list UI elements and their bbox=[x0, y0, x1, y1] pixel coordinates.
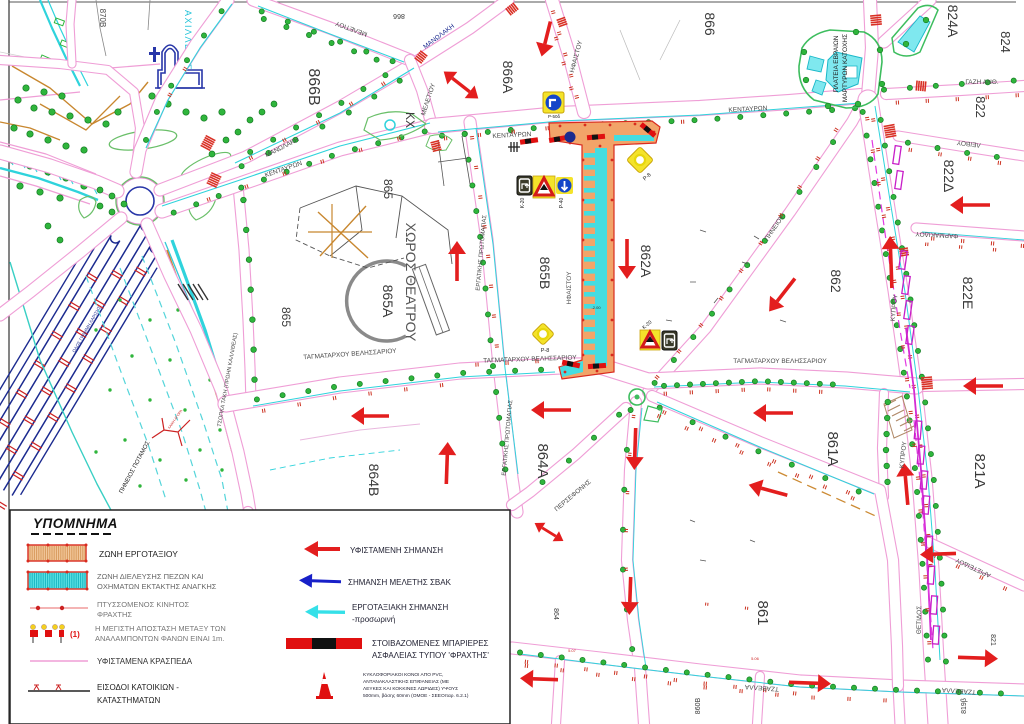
svg-text:824: 824 bbox=[998, 31, 1013, 53]
svg-text:ΕΙΣΟΔΟΙ ΚΑΤΟΙΚΙΩΝ -: ΕΙΣΟΔΟΙ ΚΑΤΟΙΚΙΩΝ - bbox=[97, 683, 179, 692]
svg-text:ΥΦΙΣΤΑΜΕΝΑ ΚΡΑΣΠΕΔΑ: ΥΦΙΣΤΑΜΕΝΑ ΚΡΑΣΠΕΔΑ bbox=[97, 657, 193, 666]
svg-text:500mm, βάσης 60mm (ΟΜΟΕ - ΣΕΕΟ: 500mm, βάσης 60mm (ΟΜΟΕ - ΣΕΕΟπαρ. 6.2.1… bbox=[363, 692, 469, 699]
svg-text:819β: 819β bbox=[961, 698, 968, 714]
svg-text:ΑΣΦΑΛΕΙΑΣ ΤΥΠΟΥ 'ΦΡΑΧΤΗΣ': ΑΣΦΑΛΕΙΑΣ ΤΥΠΟΥ 'ΦΡΑΧΤΗΣ' bbox=[372, 651, 489, 660]
svg-text:ΜΑΡΤΥΡΩΝ ΚΑΤΟΧΗΣ: ΜΑΡΤΥΡΩΝ ΚΑΤΟΧΗΣ bbox=[842, 34, 849, 102]
svg-text:822Δ: 822Δ bbox=[941, 160, 957, 193]
svg-text:ΕΡΓΟΤΑΞΙΑΚΗ ΣΗΜΑΝΣΗ: ΕΡΓΟΤΑΞΙΑΚΗ ΣΗΜΑΝΣΗ bbox=[352, 603, 448, 612]
svg-text:Ρ-50δ: Ρ-50δ bbox=[548, 114, 561, 119]
svg-text:860Β: 860Β bbox=[695, 698, 702, 715]
svg-text:870Β: 870Β bbox=[98, 9, 107, 28]
svg-text:ΑΝΤΑΝΑΚΛΑΣΤΙΚΗΣ ΕΠΙΦΑΝΕΙΑΣ (ΜΕ: ΑΝΤΑΝΑΚΛΑΣΤΙΚΗΣ ΕΠΙΦΑΝΕΙΑΣ (ΜΕ bbox=[363, 679, 449, 685]
svg-text:866: 866 bbox=[393, 12, 405, 19]
svg-text:ΛΕΥΚΕΣ ΚΑΙ ΚΟΚΚΙΝΕΣ ΛΩΡΙΔΕΣ) Υ: ΛΕΥΚΕΣ ΚΑΙ ΚΟΚΚΙΝΕΣ ΛΩΡΙΔΕΣ) ΥΨΟΥΣ bbox=[363, 686, 458, 692]
svg-text:5.07: 5.07 bbox=[568, 648, 577, 653]
svg-text:ΚΧ: ΚΧ bbox=[403, 112, 417, 128]
svg-text:ΣΗΜΑΝΣΗ ΜΕΛΕΤΗΣ ΣΒΑΚ: ΣΗΜΑΝΣΗ ΜΕΛΕΤΗΣ ΣΒΑΚ bbox=[348, 578, 452, 587]
svg-text:ΣΤΟΙΒΑΖΟΜΕΝΕΣ ΜΠΑΡΙΕΡΕΣ: ΣΤΟΙΒΑΖΟΜΕΝΕΣ ΜΠΑΡΙΕΡΕΣ bbox=[372, 639, 489, 648]
svg-text:ΖΩΝΗ ΔΙΕΛΕΥΣΗΣ ΠΕΖΩΝ ΚΑΙ: ΖΩΝΗ ΔΙΕΛΕΥΣΗΣ ΠΕΖΩΝ ΚΑΙ bbox=[97, 572, 204, 581]
svg-text:ΠΤΥΣΣΟΜΕΝΟΣ ΚΙΝΗΤΟΣ: ΠΤΥΣΣΟΜΕΝΟΣ ΚΙΝΗΤΟΣ bbox=[97, 600, 190, 609]
svg-text:866: 866 bbox=[702, 12, 718, 36]
svg-text:ΖΩΝΗ ΕΡΓΟΤΑΞΙΟΥ: ΖΩΝΗ ΕΡΓΟΤΑΞΙΟΥ bbox=[99, 549, 178, 559]
svg-text:Η ΜΕΓΙΣΤΗ ΑΠΟΣΤΑΣΗ ΜΕΤΑΞΥ ΤΩΝ: Η ΜΕΓΙΣΤΗ ΑΠΟΣΤΑΣΗ ΜΕΤΑΞΥ ΤΩΝ bbox=[95, 624, 226, 633]
svg-text:Ρ-8: Ρ-8 bbox=[541, 348, 550, 354]
svg-text:ΓΑΖΗ ΑΝΘ.: ΓΑΖΗ ΑΝΘ. bbox=[965, 79, 999, 86]
svg-text:-2.00: -2.00 bbox=[591, 305, 601, 310]
svg-text:822: 822 bbox=[973, 96, 988, 118]
svg-text:ΧΩΡΟΣ ΘΕΑΤΡΟΥ: ΧΩΡΟΣ ΘΕΑΤΡΟΥ bbox=[403, 223, 419, 342]
svg-text:ΠΛΑΤΕΙΑ ΕΒΡΑΙΩΝ: ΠΛΑΤΕΙΑ ΕΒΡΑΙΩΝ bbox=[833, 35, 840, 92]
svg-text:5.06: 5.06 bbox=[751, 656, 760, 661]
svg-text:862: 862 bbox=[828, 269, 844, 293]
svg-text:822Ε: 822Ε bbox=[960, 277, 976, 310]
svg-text:864Α: 864Α bbox=[534, 443, 551, 478]
svg-text:ΤΑΓΜΑΤΑΡΧΟΥ ΒΕΛΗΣΣΑΡΙΟΥ: ΤΑΓΜΑΤΑΡΧΟΥ ΒΕΛΗΣΣΑΡΙΟΥ bbox=[733, 358, 827, 365]
svg-text:824Α: 824Α bbox=[945, 5, 961, 38]
svg-text:861: 861 bbox=[754, 600, 771, 625]
svg-text:Ρ-40: Ρ-40 bbox=[559, 198, 565, 209]
svg-text:865Α: 865Α bbox=[380, 285, 396, 318]
svg-text:821: 821 bbox=[989, 634, 996, 646]
svg-text:864: 864 bbox=[552, 608, 559, 620]
svg-text:ΦΡΑΧΤΗΣ: ΦΡΑΧΤΗΣ bbox=[97, 610, 132, 619]
svg-text:ΚΑΤΑΣΤΗΜΑΤΩΝ: ΚΑΤΑΣΤΗΜΑΤΩΝ bbox=[97, 696, 160, 705]
svg-text:866Α: 866Α bbox=[500, 61, 516, 94]
svg-text:ΥΦΙΣΤΑΜΕΝΗ ΣΗΜΑΝΣΗ: ΥΦΙΣΤΑΜΕΝΗ ΣΗΜΑΝΣΗ bbox=[350, 546, 443, 555]
svg-text:865: 865 bbox=[279, 307, 293, 327]
svg-text:ΚΥΚΛΟΦΟΡΙΑΚΟΙ ΚΟΝΟΙ ΑΠΟ PVC,: ΚΥΚΛΟΦΟΡΙΑΚΟΙ ΚΟΝΟΙ ΑΠΟ PVC, bbox=[363, 672, 443, 678]
svg-text:ΑΝΑΛΑΜΠΟΝΤΩΝ ΦΑΝΩΝ ΕΙΝΑΙ 1m.: ΑΝΑΛΑΜΠΟΝΤΩΝ ΦΑΝΩΝ ΕΙΝΑΙ 1m. bbox=[95, 634, 224, 643]
svg-text:864Β: 864Β bbox=[366, 464, 382, 497]
svg-text:(1): (1) bbox=[70, 630, 80, 639]
svg-text:ΘΕΤΙΔΟΣ: ΘΕΤΙΔΟΣ bbox=[916, 606, 923, 635]
svg-text:861Α: 861Α bbox=[824, 431, 841, 466]
svg-text:865Β: 865Β bbox=[537, 257, 553, 290]
svg-text:866Β: 866Β bbox=[305, 68, 322, 105]
svg-text:862Α: 862Α bbox=[638, 245, 654, 278]
svg-text:ΗΦΑΙΣΤΟΥ: ΗΦΑΙΣΤΟΥ bbox=[566, 271, 573, 305]
svg-text:ΥΠΟΜΝΗΜΑ: ΥΠΟΜΝΗΜΑ bbox=[33, 516, 118, 531]
svg-text:865: 865 bbox=[381, 179, 395, 199]
svg-text:ΟΧΗΜΑΤΩΝ ΕΚΤΑΚΤΗΣ ΑΝΑΓΚΗΣ: ΟΧΗΜΑΤΩΝ ΕΚΤΑΚΤΗΣ ΑΝΑΓΚΗΣ bbox=[97, 582, 217, 591]
svg-text:821Α: 821Α bbox=[971, 453, 988, 488]
svg-text:Κ-20: Κ-20 bbox=[520, 198, 526, 209]
svg-text:-προσωρινή: -προσωρινή bbox=[352, 615, 395, 624]
